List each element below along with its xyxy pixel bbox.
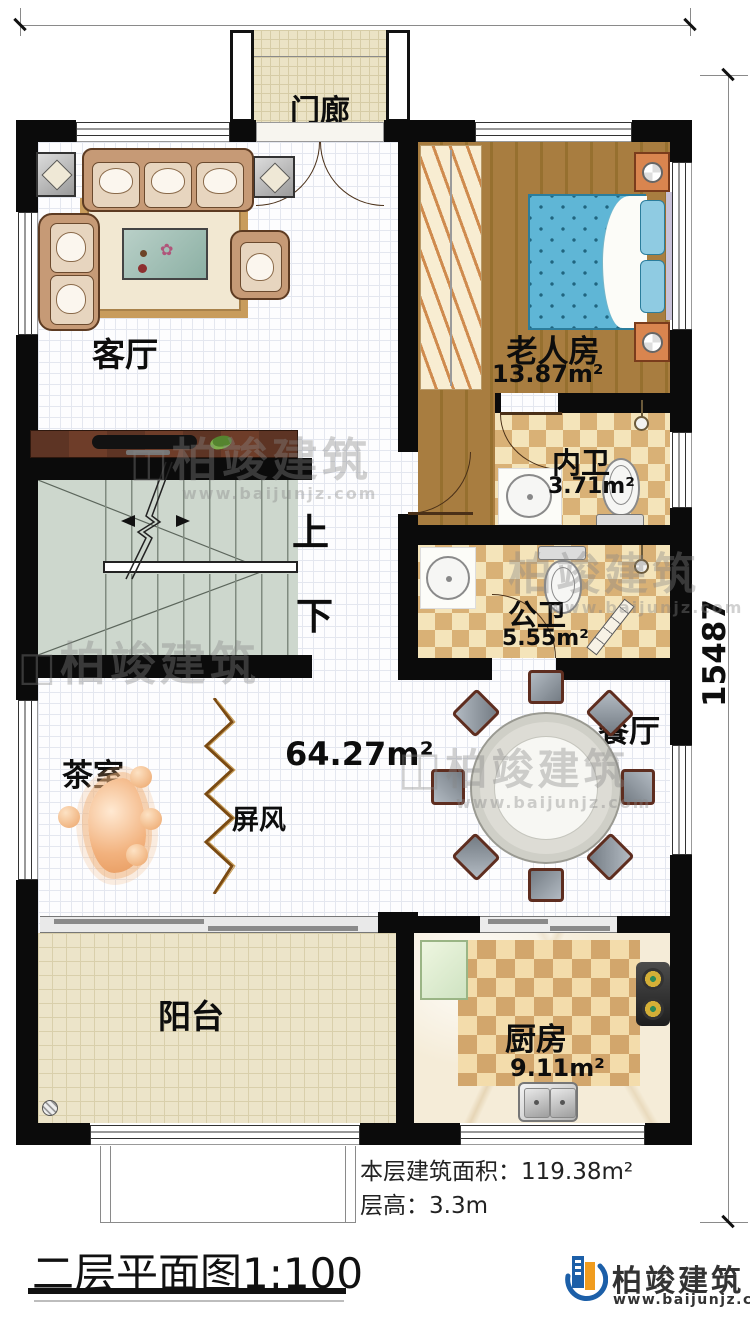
watermark-logo-icon: ◫ — [130, 440, 172, 486]
burner-icon — [642, 968, 664, 990]
folding-screen — [200, 698, 244, 894]
entry-threshold — [256, 122, 384, 142]
window — [76, 122, 230, 142]
kitchen-sink — [518, 1082, 578, 1122]
kitchen-area-label: 9.11m² — [510, 1054, 605, 1082]
title-underline-light — [34, 1300, 344, 1302]
corner-lamp-table — [36, 152, 76, 197]
wall-segment — [398, 658, 492, 680]
stairs-down-label: 下 — [296, 586, 333, 640]
decor-dot — [140, 250, 147, 257]
wall-segment — [558, 393, 670, 413]
wardrobe — [420, 145, 482, 390]
wall-segment — [230, 120, 256, 142]
bedroom-door-leaf — [408, 512, 473, 515]
stair-direction-arrow — [121, 515, 135, 527]
inner-bath-area-label: 3.71m² — [548, 474, 635, 499]
window — [18, 700, 38, 880]
dimension-line-top — [20, 25, 690, 26]
nightstand — [634, 322, 670, 362]
window — [672, 432, 692, 508]
watermark-logo-icon: ◫ — [18, 644, 60, 690]
wall-segment — [16, 880, 38, 1145]
coffee-table: ✿ — [122, 228, 208, 280]
fridge — [420, 940, 468, 1000]
wall-segment — [670, 855, 692, 1145]
exterior-step-line — [345, 1146, 346, 1222]
porch-pillar — [230, 30, 254, 122]
porch-edge-line — [252, 56, 388, 57]
sliding-door-track — [40, 916, 378, 933]
ceiling-lamp-icon — [634, 416, 649, 431]
wall-segment — [670, 330, 692, 432]
brand-url: www.baijunjz.com — [613, 1292, 750, 1308]
corner-lamp-table — [253, 156, 295, 198]
watermark-logo-icon: ◫ — [398, 741, 445, 795]
watermark: ◫柏竣建筑 — [18, 628, 260, 694]
bed-pillow — [640, 260, 665, 313]
wall-segment — [16, 1123, 90, 1145]
window — [18, 212, 38, 335]
brand-logo-icon — [556, 1250, 608, 1308]
wall-segment — [617, 916, 692, 933]
exterior-step-line — [355, 1146, 356, 1222]
wall-segment — [418, 916, 480, 933]
sofa-three-seat — [82, 148, 254, 212]
dimension-stub — [700, 75, 748, 76]
exterior-step-line — [110, 1146, 111, 1222]
sofa-corner — [38, 213, 100, 331]
wall-segment — [396, 933, 414, 1145]
window — [475, 122, 632, 142]
tea-stool — [58, 806, 80, 828]
dimension-stub — [700, 1222, 748, 1223]
lamp-icon — [259, 162, 290, 193]
title-underline — [28, 1288, 346, 1294]
wall-segment — [495, 393, 501, 413]
tea-stool — [130, 766, 152, 788]
burner-icon — [642, 998, 664, 1020]
stair-direction-arrow — [176, 515, 190, 527]
floor-height-note: 层高：3.3m — [360, 1186, 488, 1220]
flower-decor-icon: ✿ — [160, 240, 173, 259]
public-bath-area-label: 5.55m² — [502, 626, 589, 651]
exterior-step-line — [100, 1146, 101, 1222]
watermark: ◫柏竣建筑 www.baijunjz.com — [130, 424, 377, 503]
window — [90, 1125, 360, 1145]
wall-segment — [398, 142, 418, 452]
wall-segment — [645, 1123, 692, 1145]
dining-chair — [528, 670, 564, 704]
lamp-icon — [41, 159, 72, 190]
stairs-up-label: 上 — [292, 502, 329, 556]
porch-pillar — [386, 30, 410, 122]
floor-area-note: 本层建筑面积：119.38m² — [360, 1152, 633, 1186]
wall-segment — [670, 120, 692, 162]
tea-stool — [126, 844, 148, 866]
exterior-step-line — [100, 1222, 356, 1223]
sink — [426, 556, 470, 600]
floor-plan-page: 9000 15487 门廊 ✿ — [0, 0, 750, 1318]
wall-segment — [16, 120, 38, 212]
living-room-label: 客厅 — [92, 328, 158, 376]
watermark: ◫柏竣建筑 www.baijunjz.com — [398, 736, 651, 812]
wall-segment — [384, 120, 475, 142]
wardrobe-rail — [450, 150, 452, 386]
sliding-door-track — [480, 916, 617, 933]
stove — [636, 962, 670, 1026]
decor-dot — [138, 264, 147, 273]
tea-stool — [140, 808, 162, 830]
sink — [506, 474, 552, 518]
bed-pillow — [640, 200, 665, 255]
balcony-label: 阳台 — [158, 990, 224, 1038]
watermark: 柏竣建筑 www.baijunjz.com — [508, 538, 743, 617]
window — [460, 1125, 645, 1145]
inner-bath-door-leaf — [500, 412, 562, 415]
dining-chair — [528, 868, 564, 902]
kitchen-label: 厨房 — [505, 1014, 567, 1059]
wall-segment — [378, 912, 418, 934]
window — [672, 162, 692, 330]
armchair — [230, 230, 290, 300]
bedroom-area-label: 13.87m² — [492, 360, 602, 388]
nightstand — [634, 152, 670, 192]
window — [672, 745, 692, 855]
screen-label: 屏风 — [232, 798, 286, 837]
headboard — [666, 192, 672, 320]
floor-drain — [42, 1100, 58, 1116]
wall-segment — [556, 658, 692, 680]
